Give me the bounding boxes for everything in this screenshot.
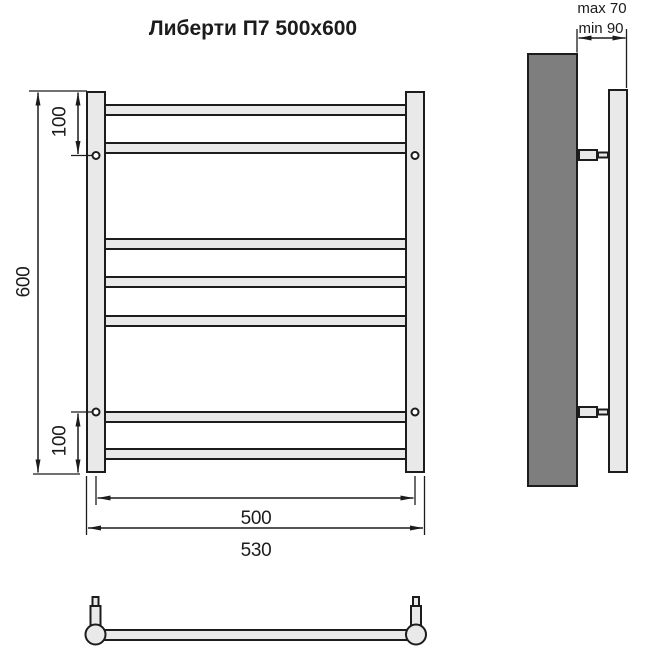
mount-hole-top-left	[93, 152, 100, 159]
drawing-title: Либерти П7 500x600	[149, 17, 357, 40]
dim-label-overall-width: 530	[241, 540, 272, 561]
rung-bar-3	[105, 239, 406, 249]
rung-bar-6	[105, 412, 406, 422]
bottom-stub-left-cap	[93, 597, 99, 606]
bracket-bottom-pin	[598, 410, 608, 415]
bottom-post-section-right	[406, 625, 426, 645]
bottom-view	[86, 597, 427, 645]
front-view	[87, 92, 424, 472]
bottom-post-section-left	[86, 625, 106, 645]
dim-label-height: 600	[14, 267, 35, 298]
dim-label-mounting-width: 500	[241, 508, 272, 529]
bottom-stub-left-body	[91, 606, 101, 626]
dim-label-top-offset: 100	[50, 107, 71, 138]
post-side-profile	[609, 90, 627, 472]
dim-label-bottom-offset: 100	[50, 426, 71, 457]
rung-bar-7	[105, 449, 406, 459]
wall-section	[528, 54, 577, 486]
bracket-bottom-body	[579, 407, 597, 417]
mount-hole-top-right	[412, 152, 419, 159]
mount-hole-bottom-right	[412, 409, 419, 416]
mount-hole-bottom-left	[93, 409, 100, 416]
rung-bar-2	[105, 143, 406, 153]
dim-label-clearance-max: max 70	[577, 0, 626, 17]
bracket-top-body	[579, 150, 597, 160]
drawing-svg: Либерти П7 500x600	[0, 0, 650, 650]
rung-bar-5	[105, 316, 406, 326]
bottom-stub-right-body	[411, 606, 421, 626]
bottom-stub-right-cap	[413, 597, 419, 606]
side-view-dimensions: max 70 min 90	[577, 0, 627, 88]
rung-bars	[105, 105, 406, 459]
side-view	[528, 54, 627, 486]
rung-bar-4	[105, 277, 406, 287]
bottom-crossbar	[97, 630, 415, 640]
rung-bar-1	[105, 105, 406, 115]
dim-label-clearance-min: min 90	[578, 20, 623, 37]
technical-drawing-towel-rail: Либерти П7 500x600	[0, 0, 650, 650]
bracket-top-pin	[598, 153, 608, 158]
